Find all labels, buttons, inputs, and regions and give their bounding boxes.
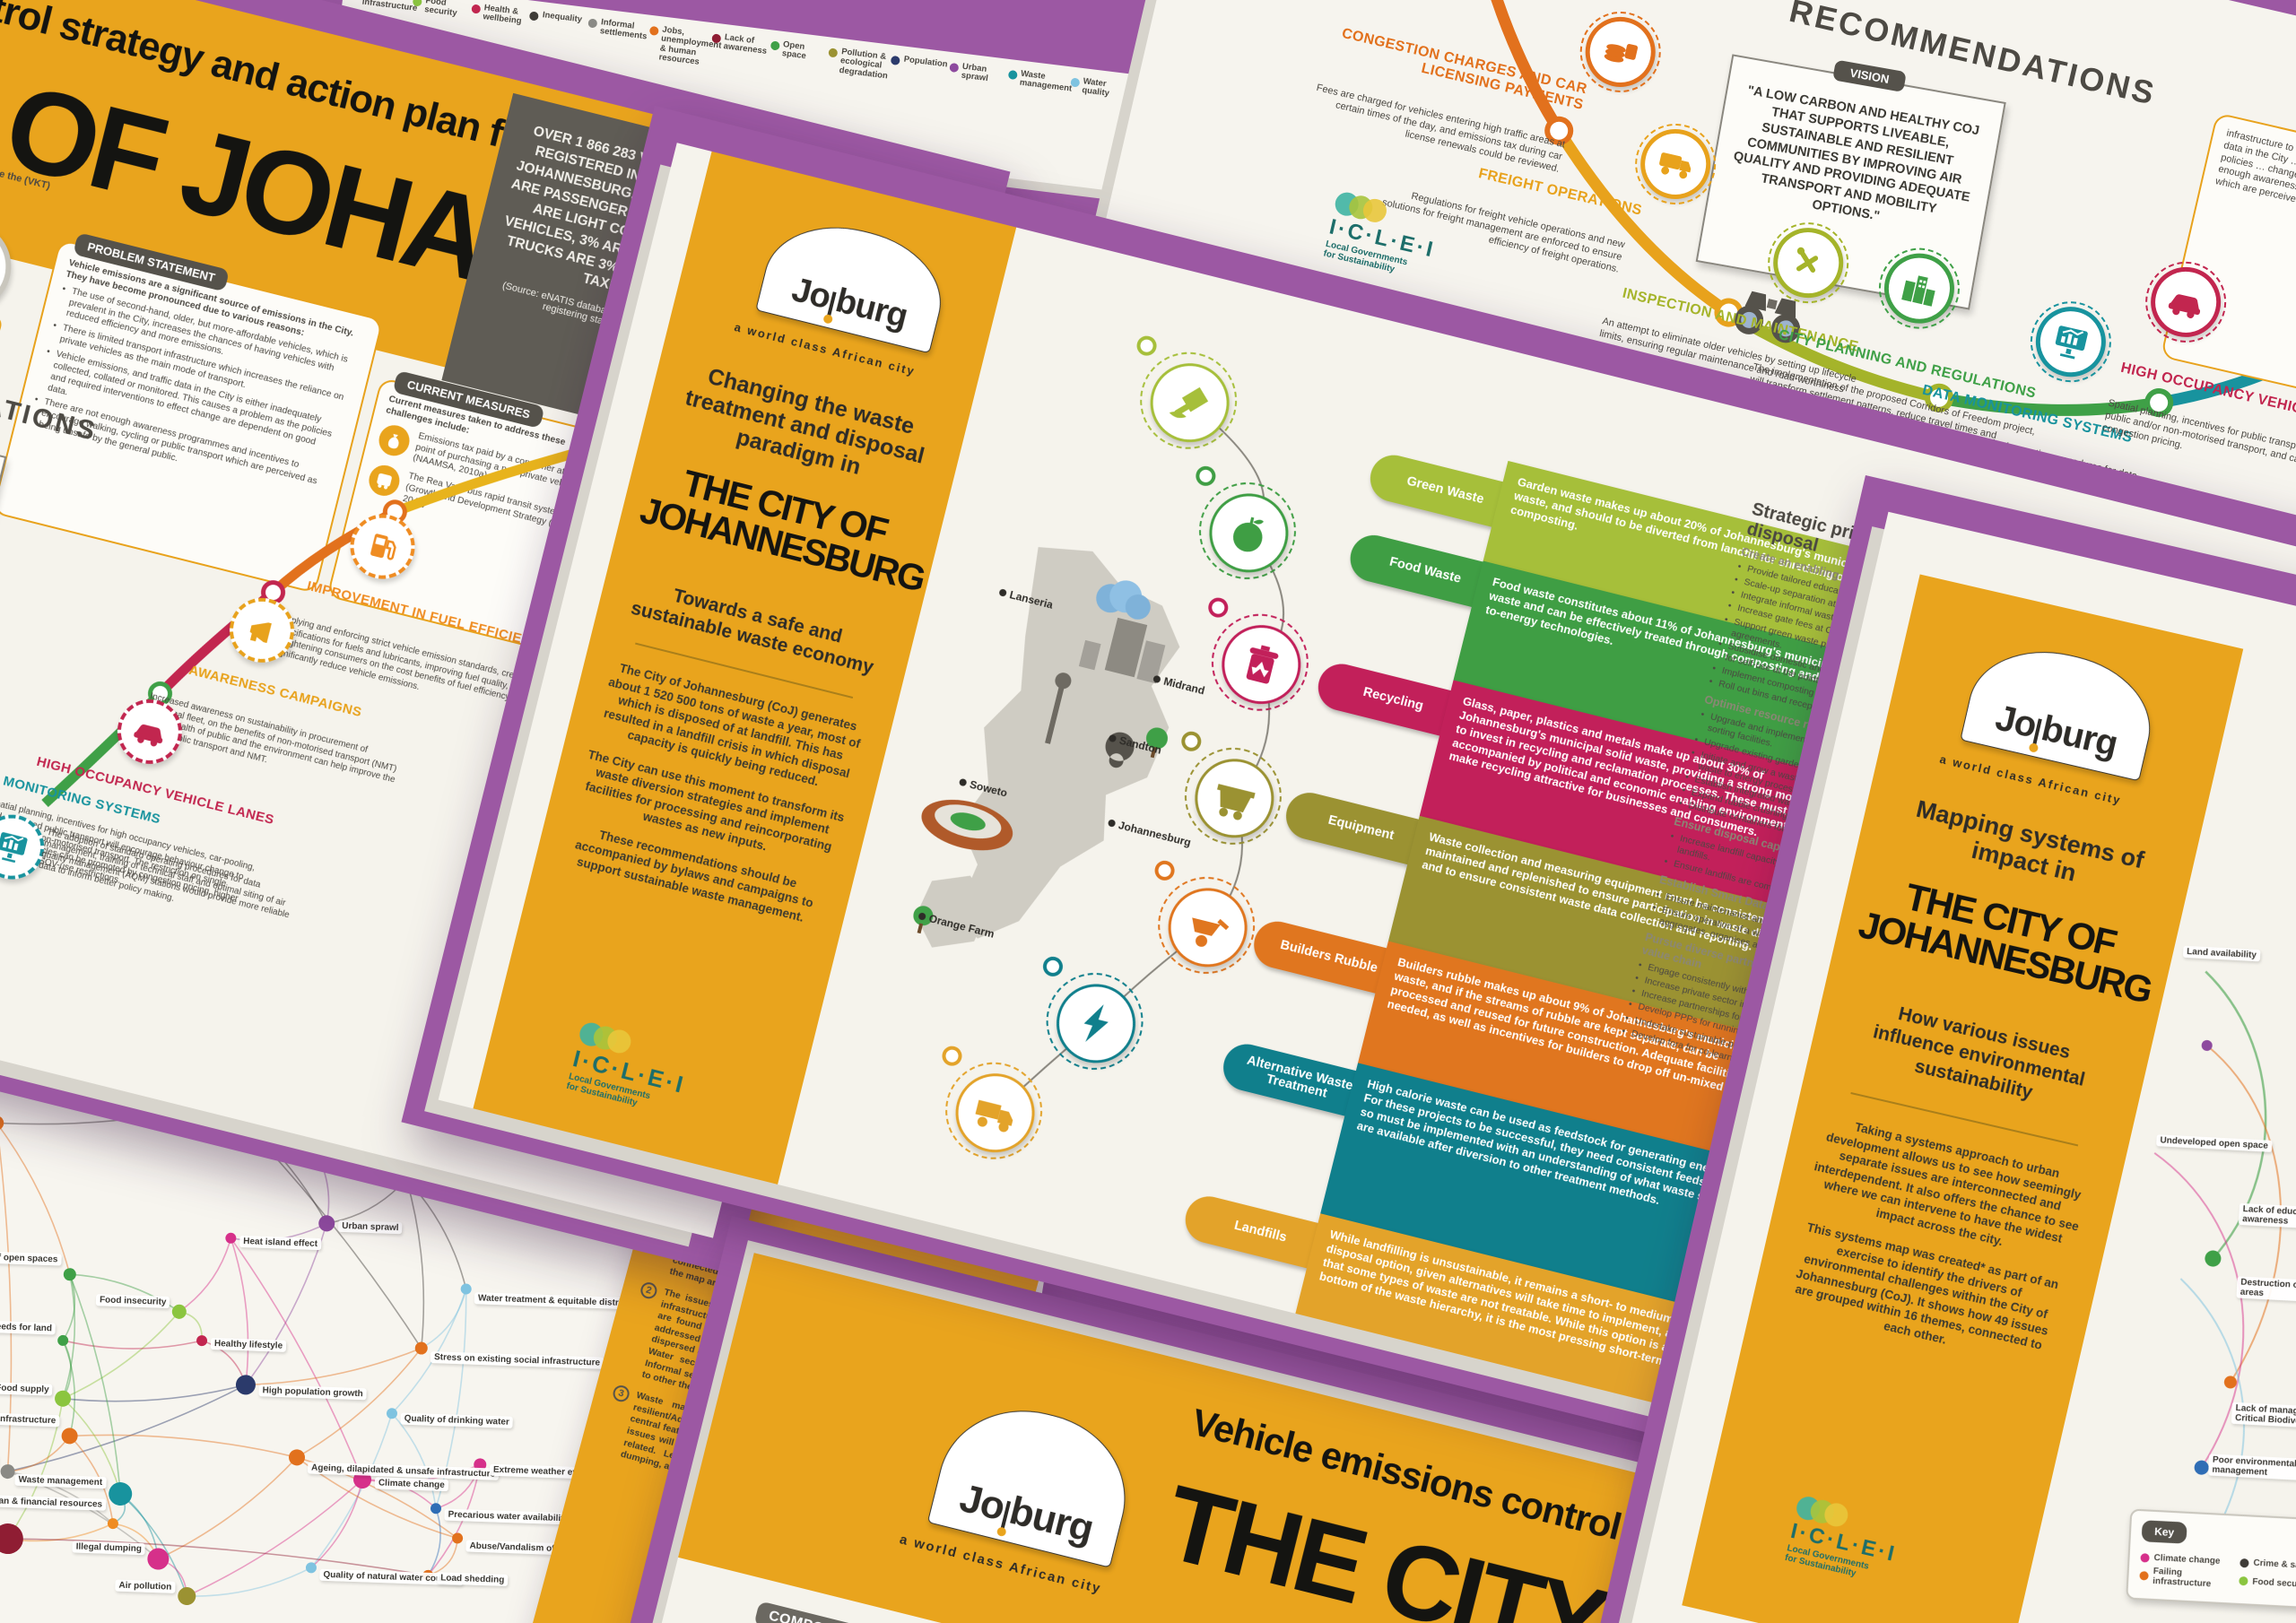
issue-label: Urban sprawl: [338, 1220, 403, 1234]
legend-label: Inequality: [542, 11, 582, 25]
issue-label: Heat island effect: [239, 1236, 321, 1250]
legend-label: Urban sprawl: [961, 63, 1007, 87]
legend-label: Informal settlements: [599, 18, 648, 42]
place-dot: [1109, 734, 1118, 743]
issue-label: Competing needs for land: [0, 1319, 56, 1335]
place-dot: [998, 588, 1007, 597]
key-item: Food security: [2239, 1571, 2296, 1596]
issue-label: Illegal dumping: [72, 1541, 145, 1555]
key-item: Crime & safety: [2239, 1558, 2296, 1573]
place-dot: [918, 912, 926, 921]
issue-label: Precarious water availability: [444, 1509, 572, 1525]
issue-label: Unequal distribution of open spaces: [0, 1248, 62, 1265]
legend-dot: [1070, 77, 1080, 87]
legend-label: Health & wellbeing: [483, 4, 529, 28]
legend-item: Water quality: [1069, 75, 1128, 100]
legend-label: Food security: [424, 0, 471, 21]
issue-label: Air pollution: [115, 1579, 175, 1593]
problem-fragment-text: infrastructure to … the reliance on priv…: [2199, 115, 2296, 267]
legend-item: Waste management: [1006, 68, 1069, 94]
legend-item: Open space: [769, 39, 828, 64]
issue-label: Food insecurity: [95, 1294, 170, 1308]
takeaway-number: 2: [639, 1280, 658, 1300]
legend-dot: [529, 11, 539, 21]
legend-dot: [649, 26, 659, 36]
high-emitters-label: HIGH EMITTERS: [0, 293, 4, 337]
legend-dot: [587, 18, 597, 28]
key-box: Key Climate changeCrime & safetyFailing …: [2126, 1508, 2296, 1610]
issue-label: Quality of drinking water: [400, 1413, 513, 1428]
issue-label: Food supply: [0, 1382, 52, 1395]
issue-label: Stress on existing social infrastructure: [430, 1351, 604, 1369]
key-label: Food security: [2252, 1576, 2296, 1589]
legend-dot: [711, 33, 721, 43]
legend-dot: [471, 4, 481, 13]
legend-label: Water quality: [1082, 77, 1128, 101]
place-dot: [1108, 819, 1117, 828]
key-dot: [2239, 1576, 2248, 1586]
issue-label: Climate change: [375, 1477, 448, 1491]
legend-item: Jobs, unemployment & human resources: [646, 24, 711, 69]
infographic-poster-collage: Failing infrastructureFood securityHealt…: [0, 0, 2296, 1623]
takeaway-number: 3: [612, 1384, 631, 1403]
key-dot: [2139, 1571, 2149, 1581]
key-item: Climate change: [2140, 1552, 2239, 1567]
legend-label: Population: [903, 56, 948, 70]
issue-label: Non-resilient/Adaptive infrastructure: [0, 1410, 60, 1427]
legend-label: Open space: [781, 40, 828, 65]
legend-dot: [891, 56, 900, 65]
legend-label: Pollution & ecological degradation: [839, 48, 891, 82]
key-dot: [2239, 1558, 2249, 1567]
issue-label: High population growth: [258, 1384, 367, 1400]
issue-label: Waste management: [15, 1474, 107, 1489]
bus-icon: [366, 463, 403, 499]
legend-dot: [828, 48, 838, 57]
place-dot: [959, 778, 968, 787]
legend-dot: [413, 0, 422, 7]
place-dot: [1152, 675, 1161, 684]
money-bag-icon: %: [376, 421, 413, 458]
issue-label: Healthy lifestyle: [211, 1338, 287, 1352]
legend-item: Informal settlements: [587, 16, 648, 42]
key-label: Climate change: [2153, 1553, 2220, 1567]
legend-dot: [949, 63, 959, 73]
legend-dot: [1007, 70, 1017, 80]
key-label: Failing infrastructure: [2152, 1567, 2239, 1591]
legend-dot: [770, 40, 779, 50]
issue-label: Inadequate allocation of human & financi…: [0, 1491, 106, 1511]
legend-item: Inequality: [529, 9, 587, 27]
key-item: Failing infrastructure: [2139, 1566, 2239, 1591]
issue-label: Load shedding: [437, 1572, 509, 1586]
legend-label: Lack of awareness: [723, 33, 770, 57]
legend-item: Population: [891, 54, 949, 72]
legend-item: Pollution & ecological degradation: [826, 46, 890, 81]
key-heading: Key: [2142, 1520, 2187, 1544]
legend-item: Health & wellbeing: [470, 2, 529, 27]
legend-label: Waste management: [1019, 70, 1074, 95]
legend-item: Urban sprawl: [948, 61, 1007, 86]
key-label: Crime & safety: [2253, 1558, 2296, 1572]
key-dot: [2140, 1553, 2150, 1563]
legend-item: Food security: [412, 0, 471, 21]
